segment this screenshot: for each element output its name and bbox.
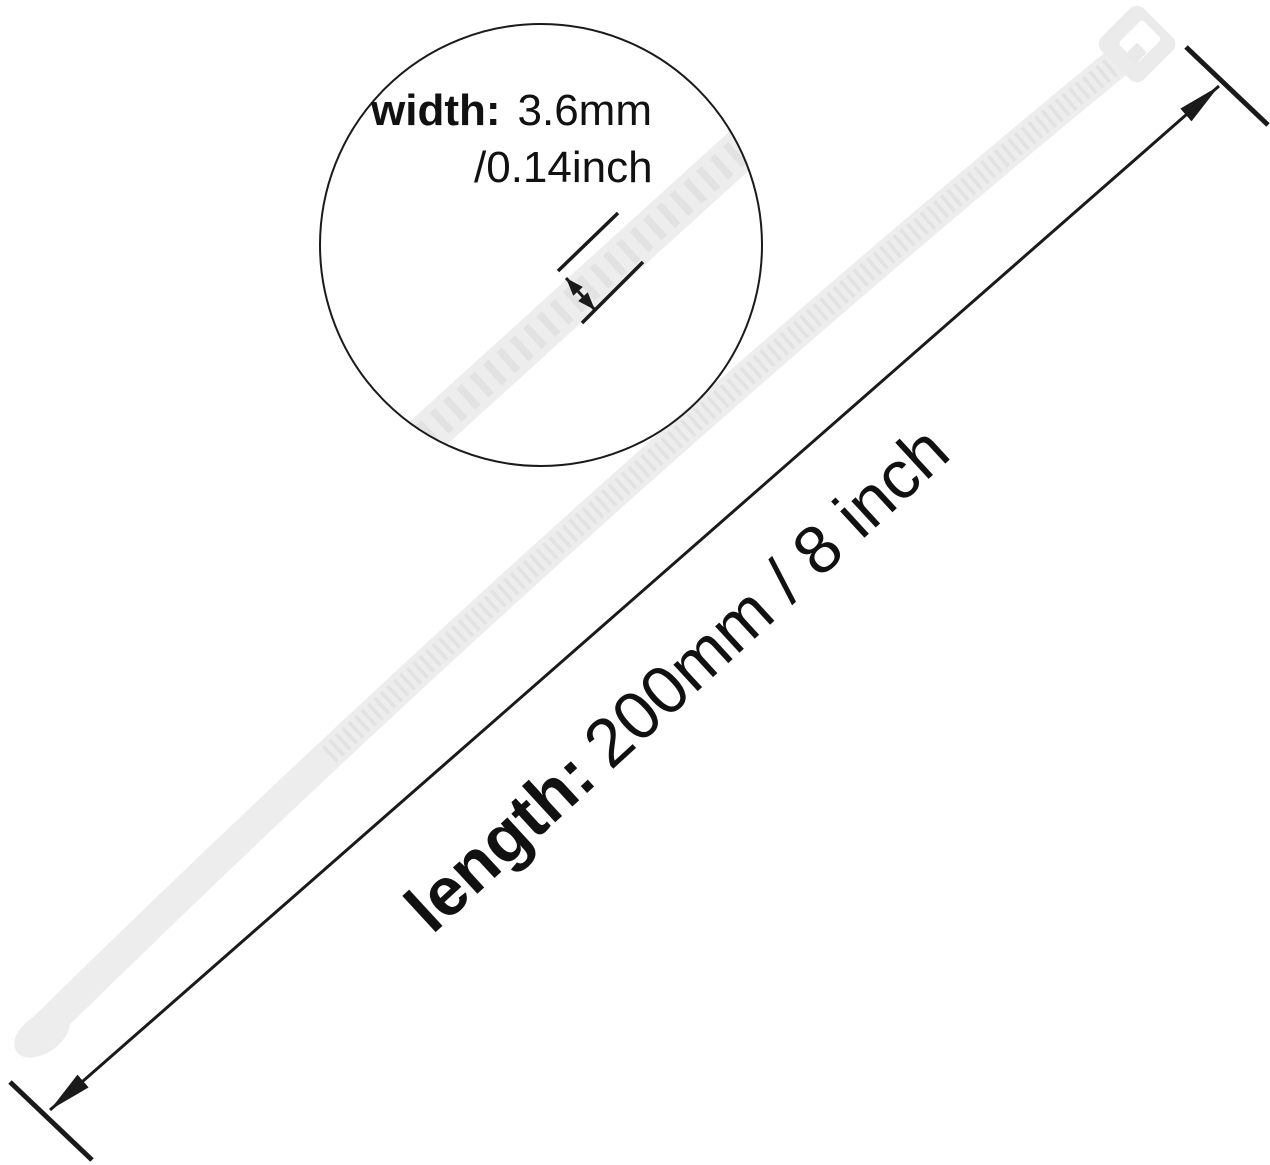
width-value-mm: 3.6mm <box>518 89 652 133</box>
dimension-tick-bottom-left <box>10 1082 92 1160</box>
width-value-inch: /0.14inch <box>474 146 653 190</box>
width-label: width: <box>371 89 501 133</box>
width-annotation: width: 3.6mm <box>371 89 652 133</box>
product-diagram: width: 3.6mm /0.14inch length: 200mm / 8… <box>0 0 1270 1165</box>
dimension-tick-top-right <box>1186 47 1268 125</box>
cable-tie-band <box>30 60 1120 1042</box>
